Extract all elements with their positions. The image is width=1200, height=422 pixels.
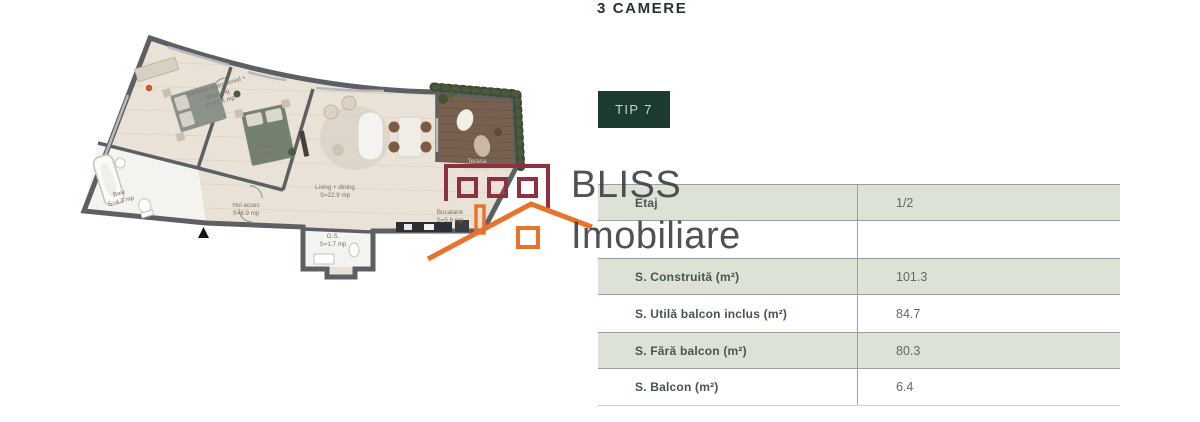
svg-text:S=6.9 mp: S=6.9 mp [233, 210, 260, 217]
svg-text:S=1.7 mp: S=1.7 mp [320, 241, 347, 248]
row-value [857, 221, 1120, 258]
plant [288, 148, 296, 156]
page: Dormitor matrimonial + dressing S=17.4 m… [0, 0, 1200, 422]
north-arrow-icon [198, 227, 209, 238]
row-label: S. Construită (m²) [598, 259, 857, 294]
spec-table: Etaj 1/2 S. Construită (m²) 101.3 S. Uti… [598, 184, 1120, 406]
svg-text:Terasa: Terasa [468, 158, 487, 165]
row-label: S. Fără balcon (m²) [598, 333, 857, 368]
row-label: S. Utilă balcon inclus (m²) [598, 295, 857, 332]
table-row: S. Balcon (m²) 6.4 [598, 369, 1120, 406]
svg-text:Bucatarie: Bucatarie [437, 209, 464, 216]
room-label-bucatarie: Bucatarie S=5.8 mp [437, 209, 464, 224]
row-value: 6.4 [857, 369, 1120, 405]
room-label-living: Living + dining S=22.9 mp [315, 184, 355, 199]
row-value: 1/2 [857, 185, 1120, 220]
table-row: S. Utilă balcon inclus (m²) 84.7 [598, 295, 1120, 332]
table-row [598, 221, 1120, 258]
terrace [436, 92, 520, 166]
table-row: Etaj 1/2 [598, 184, 1120, 221]
row-label [598, 221, 857, 258]
table-row: S. Fără balcon (m²) 80.3 [598, 332, 1120, 369]
camera-marker-icon[interactable] [145, 84, 153, 92]
page-title: 3 CAMERE [597, 0, 687, 17]
row-label: S. Balcon (m²) [598, 369, 857, 405]
svg-text:S=22.9 mp: S=22.9 mp [320, 192, 351, 199]
room-label-hol: Hol acces S=6.9 mp [232, 202, 259, 217]
svg-text:G.S.: G.S. [327, 233, 340, 240]
table-row: S. Construită (m²) 101.3 [598, 258, 1120, 295]
row-label: Etaj [598, 185, 857, 220]
plant [234, 91, 241, 98]
svg-text:Living + dining: Living + dining [315, 184, 355, 191]
svg-text:S=5.8 mp: S=5.8 mp [437, 217, 464, 224]
svg-text:Hol acces: Hol acces [232, 202, 259, 209]
row-value: 101.3 [857, 259, 1120, 294]
row-value: 84.7 [857, 295, 1120, 332]
type-badge-button[interactable]: TIP 7 [598, 91, 670, 128]
row-value: 80.3 [857, 333, 1120, 368]
